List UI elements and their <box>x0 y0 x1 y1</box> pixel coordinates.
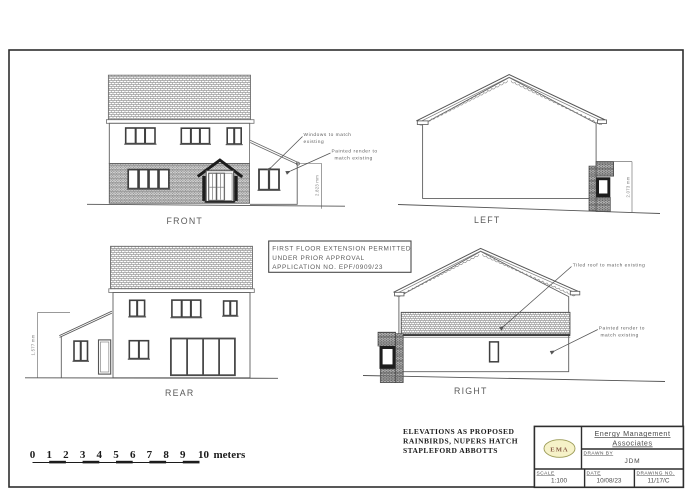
svg-text:UNDER PRIOR APPROVAL: UNDER PRIOR APPROVAL <box>272 255 365 262</box>
svg-text:RAINBIRDS, NUPERS HATCH: RAINBIRDS, NUPERS HATCH <box>403 437 518 446</box>
svg-text:EMA: EMA <box>550 447 568 454</box>
svg-text:4: 4 <box>97 449 103 461</box>
svg-text:Tiled roof to match existi: Tiled roof to match existing <box>573 263 646 269</box>
svg-text:meters: meters <box>214 449 246 461</box>
svg-text:2: 2 <box>63 449 69 461</box>
svg-text:DATE: DATE <box>587 471 601 477</box>
svg-text:7: 7 <box>147 449 153 461</box>
svg-text:ELEVATIONS AS PROPOSED: ELEVATIONS AS PROPOSED <box>403 427 514 436</box>
svg-text:JDM: JDM <box>625 458 641 465</box>
svg-text:SCALE: SCALE <box>537 471 555 477</box>
svg-text:5: 5 <box>113 449 119 461</box>
svg-text:9: 9 <box>180 449 186 461</box>
svg-text:2.823 mm: 2.823 mm <box>315 175 320 196</box>
svg-text:1: 1 <box>46 449 52 461</box>
svg-text:2.073 mm: 2.073 mm <box>625 176 630 197</box>
svg-text:match existing: match existing <box>601 333 639 339</box>
svg-text:match existing: match existing <box>335 156 373 162</box>
svg-text:existing: existing <box>304 139 325 145</box>
svg-text:8: 8 <box>163 449 169 461</box>
svg-text:STAPLEFORD ABBOTTS: STAPLEFORD ABBOTTS <box>403 446 498 455</box>
svg-text:RIGHT: RIGHT <box>454 386 488 396</box>
svg-text:1:100: 1:100 <box>551 478 567 485</box>
svg-text:DRAWING NO.: DRAWING NO. <box>637 471 675 477</box>
svg-text:10: 10 <box>198 449 210 461</box>
svg-text:FRONT: FRONT <box>167 216 204 226</box>
svg-text:REAR: REAR <box>165 388 194 398</box>
svg-text:10/08/23: 10/08/23 <box>597 478 622 485</box>
svg-text:Painted render to: Painted render to <box>599 326 645 332</box>
svg-text:APPLICATION NO. EPF/0909/23: APPLICATION NO. EPF/0909/23 <box>272 264 383 271</box>
svg-text:DRAWN BY: DRAWN BY <box>584 451 614 457</box>
svg-text:LEFT: LEFT <box>474 215 501 225</box>
svg-text:Associates: Associates <box>612 439 652 448</box>
svg-text:Windows to match: Windows to match <box>304 132 352 138</box>
svg-text:Energy Management: Energy Management <box>594 429 670 438</box>
svg-text:0: 0 <box>30 449 36 461</box>
svg-text:11/17/C: 11/17/C <box>648 478 670 485</box>
svg-text:3: 3 <box>80 449 86 461</box>
svg-text:Painted render to: Painted render to <box>332 149 378 155</box>
svg-text:1.577 mm: 1.577 mm <box>30 334 35 355</box>
svg-text:FIRST FLOOR EXTENSION PERMITTE: FIRST FLOOR EXTENSION PERMITTED <box>272 246 411 253</box>
svg-text:6: 6 <box>130 449 136 461</box>
